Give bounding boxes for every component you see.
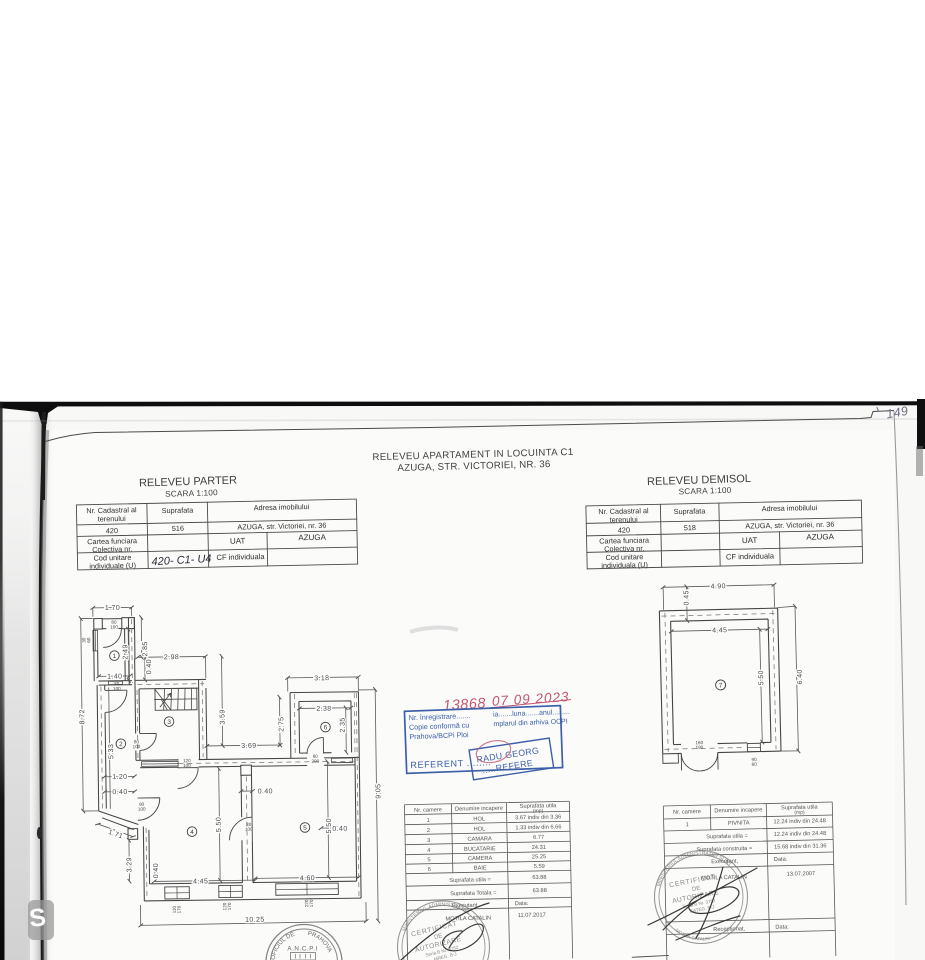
svg-text:(mp): (mp)	[794, 810, 805, 816]
svg-text:11.07.2017: 11.07.2017	[518, 912, 546, 919]
svg-text:A.N.C.P.I: A.N.C.P.I	[287, 946, 317, 953]
svg-text:0.40: 0.40	[258, 788, 273, 795]
svg-text:1.40: 1.40	[107, 673, 122, 680]
svg-text:SCARA 1:100: SCARA 1:100	[679, 486, 732, 497]
svg-text:AZUGA, str. Victoriei, nr. 36: AZUGA, str. Victoriei, nr. 36	[237, 521, 326, 532]
svg-text:1: 1	[427, 818, 430, 824]
svg-text:Nr. camere: Nr. camere	[414, 807, 442, 814]
svg-text:5: 5	[303, 825, 307, 832]
svg-text:110170: 110170	[172, 905, 182, 913]
svg-text:120170: 120170	[222, 902, 232, 910]
svg-text:190: 190	[695, 745, 703, 750]
svg-text:Suprafata utila =: Suprafata utila =	[449, 877, 491, 884]
svg-text:3: 3	[427, 838, 430, 844]
svg-text:4.45: 4.45	[193, 878, 208, 885]
svg-text:1: 1	[686, 822, 689, 828]
svg-text:100: 100	[133, 744, 141, 749]
svg-text:0.45: 0.45	[683, 590, 690, 605]
svg-text:200: 200	[311, 759, 319, 764]
svg-text:5.50: 5.50	[758, 670, 765, 685]
svg-text:Denumire incapere: Denumire incapere	[455, 806, 503, 813]
svg-text:UAT: UAT	[230, 536, 246, 545]
svg-text:1.20: 1.20	[112, 774, 127, 781]
svg-text:3.67 indiv din 3.36: 3.67 indiv din 3.36	[515, 814, 561, 821]
svg-text:AZUGA, str. Victoriei, nr. 36: AZUGA, str. Victoriei, nr. 36	[745, 520, 834, 531]
svg-text:BUCATARIE: BUCATARIE	[464, 846, 496, 853]
svg-text:420: 420	[618, 525, 630, 534]
svg-text:0.40: 0.40	[112, 789, 127, 796]
svg-text:Denumire incapere: Denumire incapere	[714, 807, 762, 814]
svg-text:63.88: 63.88	[532, 875, 546, 881]
svg-text:0.40: 0.40	[153, 863, 160, 878]
svg-text:2.98: 2.98	[164, 654, 179, 661]
svg-text:individuala (U): individuala (U)	[601, 560, 648, 570]
svg-text:terenului: terenului	[610, 515, 639, 525]
svg-text:4.90: 4.90	[711, 583, 726, 590]
svg-text:1.70: 1.70	[105, 605, 120, 612]
svg-text:2: 2	[119, 741, 123, 748]
svg-text:SCARA 1:100: SCARA 1:100	[165, 488, 218, 499]
svg-text:3.29: 3.29	[126, 857, 133, 872]
svg-text:2.75: 2.75	[278, 716, 285, 731]
svg-text:5: 5	[427, 857, 430, 863]
svg-text:Suprafata: Suprafata	[674, 506, 707, 516]
svg-text:HOL: HOL	[473, 816, 485, 822]
svg-text:100: 100	[183, 763, 191, 768]
svg-text:2: 2	[427, 828, 430, 834]
svg-text:24.31: 24.31	[532, 845, 546, 851]
svg-text:12.24 indiv din 24.48: 12.24 indiv din 24.48	[774, 831, 827, 838]
svg-text:BAIE: BAIE	[474, 865, 487, 871]
svg-text:PIVNITA: PIVNITA	[728, 820, 750, 827]
svg-text:100: 100	[245, 827, 253, 832]
svg-text:Adresa imobilului: Adresa imobilului	[762, 503, 818, 513]
svg-text:terenului: terenului	[98, 514, 127, 524]
svg-text:4.45: 4.45	[712, 627, 727, 634]
svg-text:(mp): (mp)	[533, 808, 544, 814]
svg-text:1: 1	[113, 653, 117, 660]
svg-text:100: 100	[138, 807, 146, 812]
svg-text:S: S	[28, 903, 48, 933]
svg-text:420: 420	[106, 526, 118, 535]
svg-text:516: 516	[172, 524, 184, 533]
svg-text:8.72: 8.72	[79, 709, 86, 724]
svg-text:Suprafata: Suprafata	[162, 505, 195, 515]
svg-text:AZUGA: AZUGA	[298, 533, 326, 543]
svg-text:CAMARA: CAMARA	[467, 836, 492, 843]
svg-text:Adresa imobilului: Adresa imobilului	[254, 502, 310, 512]
svg-text:3.69: 3.69	[241, 743, 256, 750]
svg-text:CF individuala: CF individuala	[216, 552, 265, 562]
svg-text:6: 6	[428, 867, 431, 873]
svg-text:10.25: 10.25	[245, 917, 265, 924]
svg-text:12.24 indiv din 24.48: 12.24 indiv din 24.48	[773, 818, 826, 825]
svg-text:6.40: 6.40	[797, 669, 804, 684]
svg-text:2.85: 2.85	[142, 641, 149, 656]
svg-text:13.07.2007: 13.07.2007	[787, 871, 816, 878]
svg-text:6.77: 6.77	[533, 835, 544, 841]
svg-text:Receptionat,: Receptionat,	[713, 926, 745, 933]
svg-text:4.60: 4.60	[300, 875, 315, 882]
svg-text:4: 4	[190, 829, 194, 836]
svg-text:4: 4	[427, 848, 430, 854]
svg-text:60: 60	[752, 762, 758, 767]
svg-text:220170: 220170	[304, 899, 314, 907]
svg-text:6: 6	[324, 724, 328, 731]
svg-text:5.59: 5.59	[534, 864, 545, 870]
svg-text:1.33 indiv din 6.66: 1.33 indiv din 6.66	[515, 824, 561, 831]
svg-text:100: 100	[110, 624, 118, 629]
svg-text:3.59: 3.59	[219, 709, 226, 724]
svg-text:3.18: 3.18	[314, 675, 329, 682]
svg-text:CAMERA: CAMERA	[468, 856, 493, 863]
svg-text:15.68 indiv din 31.36: 15.68 indiv din 31.36	[774, 843, 827, 850]
svg-text:63.88: 63.88	[533, 888, 547, 894]
svg-text:Data:: Data:	[775, 924, 789, 930]
svg-text:UAT: UAT	[742, 536, 758, 545]
svg-text:7: 7	[719, 682, 723, 689]
svg-text:Suprafata utila =: Suprafata utila =	[706, 833, 748, 840]
svg-text:2.35: 2.35	[340, 717, 347, 732]
svg-text:3: 3	[167, 719, 171, 726]
svg-text:CF individuala: CF individuala	[726, 551, 775, 561]
svg-text:Suprafata Totala =: Suprafata Totala =	[450, 890, 497, 897]
svg-text:3060: 3060	[81, 637, 91, 643]
svg-text:Nr. camere: Nr. camere	[673, 809, 701, 816]
svg-text:Data:: Data:	[774, 857, 788, 863]
svg-text:HOL: HOL	[474, 826, 486, 832]
svg-text:9.05: 9.05	[375, 784, 382, 799]
svg-text:2.49: 2.49	[122, 644, 129, 659]
svg-text:0.40: 0.40	[146, 659, 153, 674]
svg-text:2.38: 2.38	[316, 706, 331, 713]
svg-text:Data:: Data:	[515, 901, 529, 907]
svg-text:25.25: 25.25	[532, 854, 546, 860]
svg-text:0.40: 0.40	[332, 826, 347, 833]
svg-text:individuale (U): individuale (U)	[89, 561, 136, 571]
svg-text:100: 100	[113, 686, 121, 691]
svg-text:5.33: 5.33	[108, 744, 115, 759]
svg-text:5.50: 5.50	[216, 817, 223, 832]
svg-text:AZUGA: AZUGA	[806, 532, 834, 542]
svg-text:518: 518	[684, 523, 696, 532]
